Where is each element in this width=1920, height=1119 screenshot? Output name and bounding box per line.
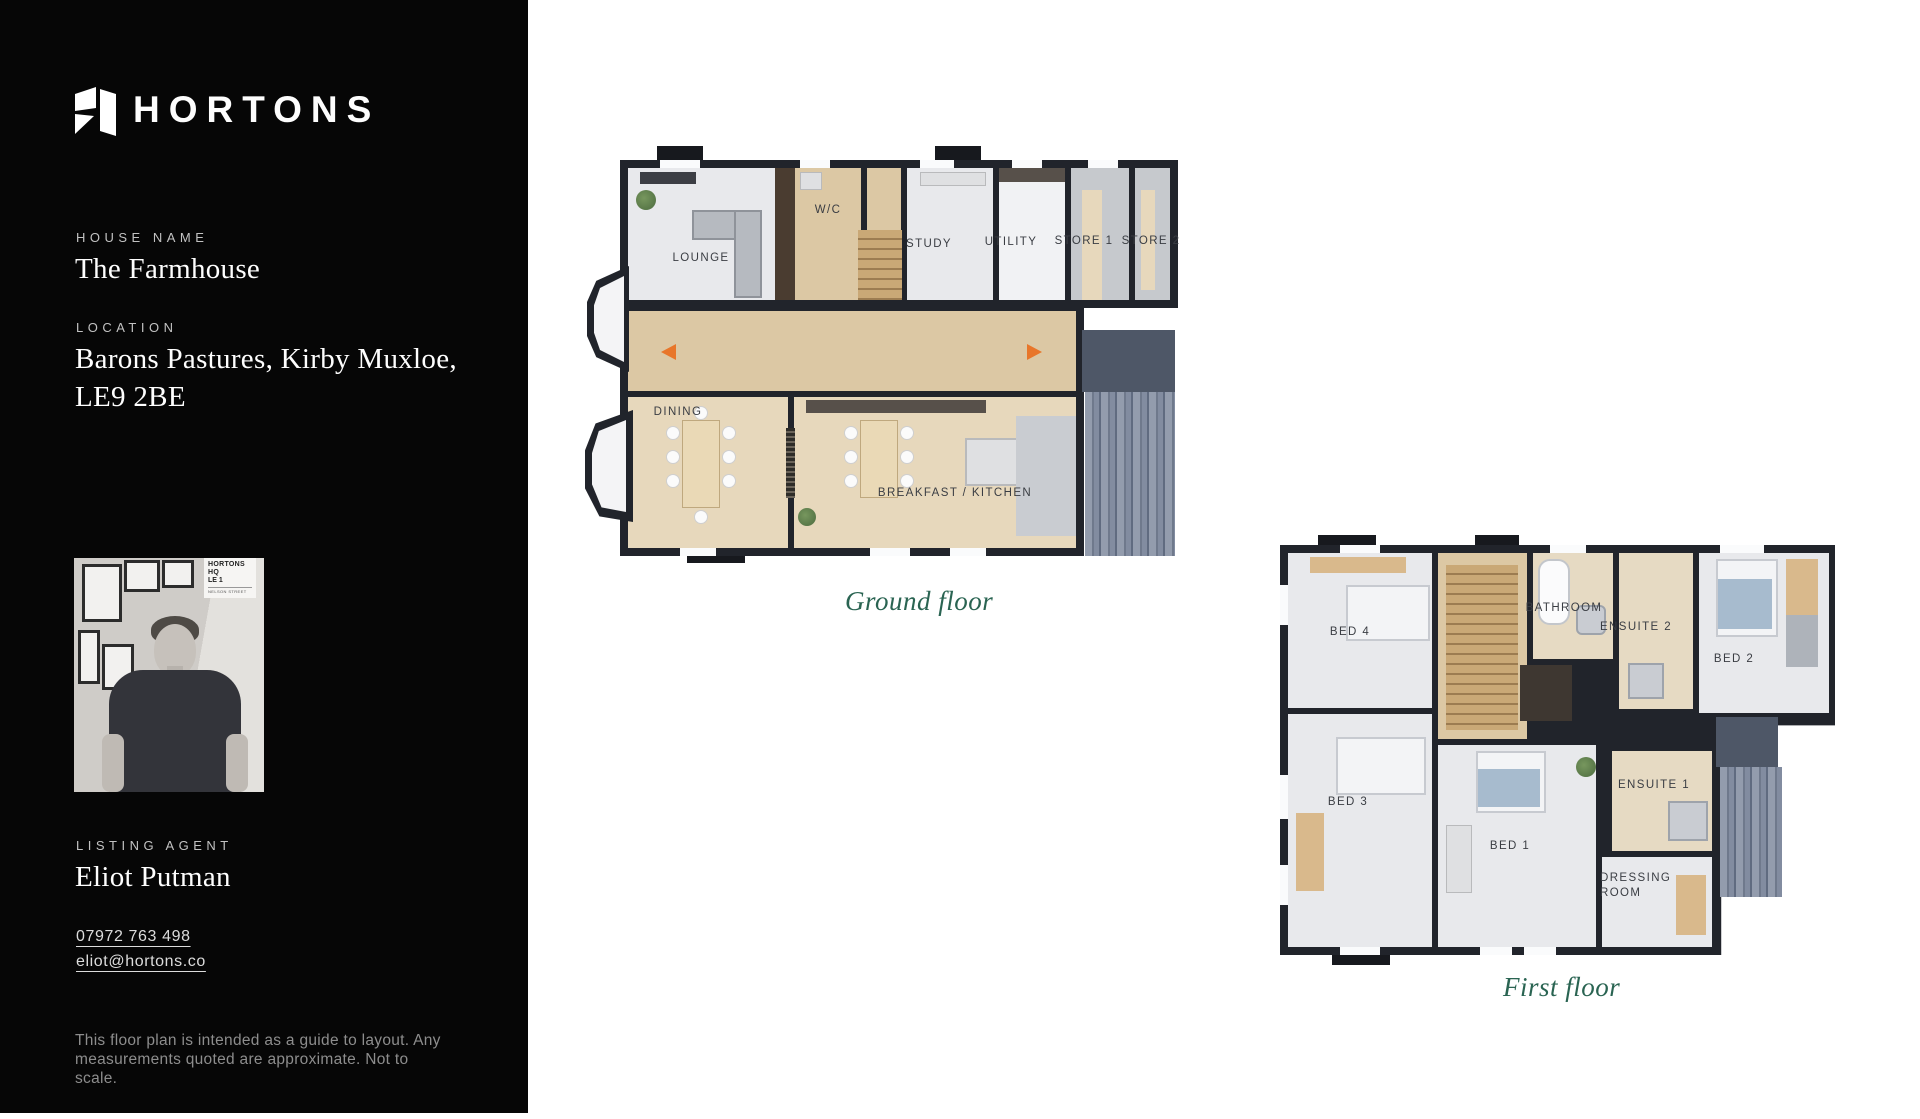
window (870, 548, 910, 556)
window (660, 160, 700, 168)
duvet (1718, 579, 1772, 629)
window (1480, 947, 1512, 955)
location-line-1: Barons Pastures, Kirby Muxloe, (75, 340, 457, 378)
listing-agent-label: LISTING AGENT (76, 838, 233, 853)
plant-icon (1576, 757, 1596, 777)
picture-frame (82, 564, 122, 622)
sofa-bench (1296, 813, 1324, 891)
patio-rug (1085, 392, 1175, 556)
chair-icon (722, 450, 736, 464)
chair-icon (722, 426, 736, 440)
hall-under-wc (795, 256, 861, 300)
study-desk (920, 172, 986, 186)
window (1524, 947, 1556, 955)
bathtub (1538, 559, 1570, 625)
house-name-label: HOUSE NAME (76, 230, 208, 245)
location-value: Barons Pastures, Kirby Muxloe, LE9 2BE (75, 340, 457, 416)
room-label-bed-3: BED 3 (1328, 796, 1368, 808)
chair-icon (844, 474, 858, 488)
balcony (1716, 717, 1778, 767)
window (1280, 775, 1288, 819)
window (920, 160, 954, 168)
picture-frame (124, 560, 160, 592)
location-label: LOCATION (76, 320, 178, 335)
wardrobe (1310, 557, 1406, 573)
agent-portrait-arm (226, 734, 248, 792)
lounge-sofa (734, 210, 762, 298)
chair-icon (666, 450, 680, 464)
hortons-hq-sign: HORTONS HQ LE 1 NELSON STREET (204, 558, 256, 598)
balcony-rug (1720, 767, 1782, 897)
slatted-divider (786, 428, 795, 498)
house-name-value: The Farmhouse (75, 250, 260, 288)
chair-icon (666, 426, 680, 440)
chair-icon (844, 426, 858, 440)
utility-counter (999, 168, 1065, 182)
agent-portrait-arm (102, 734, 124, 792)
shelving-unit (775, 168, 795, 300)
window (1340, 947, 1380, 955)
ground-floor-plan: LOUNGE W/C STUDY UTILITY STORE 1 STORE 2… (595, 118, 1185, 568)
kitchen-run (1016, 416, 1076, 536)
patio (1082, 330, 1175, 392)
wc-sink (800, 172, 822, 190)
ground-floor-caption: Ground floor (845, 586, 993, 617)
room-label-store-1: STORE 1 (1055, 235, 1114, 247)
hallway (628, 311, 1076, 391)
sign-line-3: NELSON STREET (208, 590, 252, 595)
brand-wordmark: HORTONS (133, 89, 380, 131)
room-study (907, 168, 993, 300)
room-label-ensuite-1: ENSUITE 1 (1618, 779, 1690, 791)
staircase (1446, 565, 1518, 730)
room-label-wc: W/C (815, 204, 842, 216)
first-floor-caption: First floor (1503, 972, 1620, 1003)
hortons-logo-icon (75, 84, 117, 136)
disclaimer-line-2: measurements quoted are approximate. Not… (75, 1050, 445, 1088)
chair-icon (900, 474, 914, 488)
agent-portrait-torso (109, 670, 241, 792)
desk (1446, 825, 1472, 893)
agent-phone-link[interactable]: 07972 763 498 (76, 928, 191, 946)
staircase (858, 230, 902, 300)
building-walls (620, 308, 1084, 556)
building-walls (620, 160, 1178, 308)
room-label-store-2: STORE 2 (1122, 235, 1181, 247)
room-label-study: STUDY (906, 238, 952, 250)
chair-icon (694, 510, 708, 524)
brand-logo: HORTONS (75, 84, 380, 136)
room-label-bed-1: BED 1 (1490, 840, 1530, 852)
plant-icon (798, 508, 816, 526)
room-label-breakfast-kitchen: BREAKFAST / KITCHEN (878, 487, 1032, 499)
disclaimer: This floor plan is intended as a guide t… (75, 1031, 445, 1088)
wardrobe (1786, 615, 1818, 667)
window (1280, 865, 1288, 905)
room-label-bed-2: BED 2 (1714, 653, 1754, 665)
tv-unit (640, 172, 696, 184)
duvet (1478, 769, 1540, 807)
window (950, 548, 986, 556)
cupboard-unit (1520, 665, 1572, 721)
plant-icon (636, 190, 656, 210)
picture-frame (162, 560, 194, 588)
room-label-ensuite-2: ENSUITE 2 (1600, 621, 1672, 633)
window (1340, 545, 1380, 553)
entrance-arrow-icon (1027, 344, 1042, 360)
bed (1336, 737, 1426, 795)
chair-icon (722, 474, 736, 488)
agent-email-link[interactable]: eliot@hortons.co (76, 953, 206, 971)
location-line-2: LE9 2BE (75, 378, 457, 416)
room-label-dining: DINING (654, 406, 703, 418)
shower-tray (1628, 663, 1664, 699)
entrance-arrow-icon (661, 344, 676, 360)
chair-icon (666, 474, 680, 488)
window (1550, 545, 1586, 553)
window (1012, 160, 1042, 168)
kitchen-counter (806, 400, 986, 413)
sign-line-1: HORTONS HQ (208, 561, 252, 577)
window (680, 548, 716, 556)
room-label-bathroom: BATHROOM (1526, 602, 1603, 614)
chair-icon (900, 426, 914, 440)
room-label-utility: UTILITY (985, 236, 1038, 248)
room-label-bed-4: BED 4 (1330, 626, 1370, 638)
window (1720, 545, 1764, 553)
sign-line-2: LE 1 (208, 577, 252, 588)
window (1280, 585, 1288, 625)
room-utility (999, 168, 1065, 300)
chair-icon (844, 450, 858, 464)
shower-tray (1668, 801, 1708, 841)
room-label-dressing-room: DRESSING ROOM (1600, 871, 1684, 901)
agent-name: Eliot Putman (75, 858, 231, 896)
room-label-lounge: LOUNGE (673, 252, 730, 264)
dining-table (682, 420, 720, 508)
picture-frame (78, 630, 100, 684)
sidebar: HORTONS HOUSE NAME The Farmhouse LOCATIO… (0, 0, 528, 1113)
disclaimer-line-1: This floor plan is intended as a guide t… (75, 1031, 445, 1050)
window (800, 160, 830, 168)
chair-icon (900, 450, 914, 464)
first-floor-plan: BED 4 BATHROOM ENSUITE 2 BED 2 BED 3 BED… (1270, 535, 1880, 967)
agent-photo: HORTONS HQ LE 1 NELSON STREET (74, 558, 264, 792)
window (1088, 160, 1118, 168)
wardrobe (1786, 559, 1818, 615)
